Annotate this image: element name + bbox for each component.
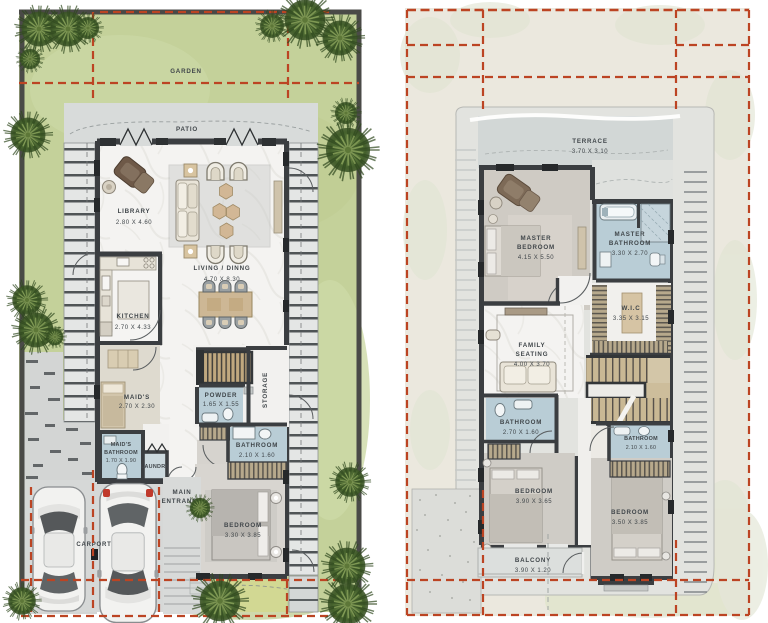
svg-text:MASTER: MASTER xyxy=(521,235,552,242)
svg-text:STORAGE: STORAGE xyxy=(262,372,269,408)
svg-text:BEDROOM: BEDROOM xyxy=(515,488,553,495)
svg-text:PATIO: PATIO xyxy=(176,126,198,133)
svg-text:2.70 X 4.33: 2.70 X 4.33 xyxy=(115,325,151,331)
svg-text:MAID'S: MAID'S xyxy=(124,394,150,401)
svg-text:BATHROOM: BATHROOM xyxy=(609,240,651,247)
svg-text:BEDROOM: BEDROOM xyxy=(611,509,649,516)
svg-text:BATHROOM: BATHROOM xyxy=(624,436,658,442)
svg-text:KITCHEN: KITCHEN xyxy=(116,313,149,320)
svg-text:LAUNDRY: LAUNDRY xyxy=(141,464,169,470)
svg-text:4.00 X 3.70: 4.00 X 3.70 xyxy=(514,362,550,368)
svg-text:3.90 X 1.20: 3.90 X 1.20 xyxy=(515,568,551,574)
svg-text:SEATING: SEATING xyxy=(516,351,549,358)
svg-text:BATHROOM: BATHROOM xyxy=(236,442,278,449)
svg-text:MAIN: MAIN xyxy=(172,489,191,496)
svg-text:POWDER: POWDER xyxy=(205,392,238,399)
svg-text:BATHROOM: BATHROOM xyxy=(500,419,542,426)
svg-text:3.90 X 3.65: 3.90 X 3.65 xyxy=(516,499,552,505)
svg-text:2.10 X 1.60: 2.10 X 1.60 xyxy=(239,453,275,459)
svg-text:4.15 X 5.50: 4.15 X 5.50 xyxy=(518,255,554,261)
svg-text:BALCONY: BALCONY xyxy=(515,557,551,564)
svg-text:LIVING / DINNG: LIVING / DINNG xyxy=(194,265,251,272)
svg-text:TERRACE: TERRACE xyxy=(572,138,608,145)
svg-text:GARDEN: GARDEN xyxy=(170,68,202,75)
svg-text:W.I.C: W.I.C xyxy=(621,305,640,312)
svg-text:1.70 X 1.90: 1.70 X 1.90 xyxy=(106,458,136,464)
svg-text:3.30 X 3.85: 3.30 X 3.85 xyxy=(225,533,261,539)
svg-text:FAMILY: FAMILY xyxy=(519,342,546,349)
svg-text:MASTER: MASTER xyxy=(615,231,646,238)
svg-text:2.70 X 2.30: 2.70 X 2.30 xyxy=(119,404,155,410)
svg-text:2.80 X 4.60: 2.80 X 4.60 xyxy=(116,220,152,226)
svg-text:BEDROOM: BEDROOM xyxy=(224,522,262,529)
svg-text:LIBRARY: LIBRARY xyxy=(118,208,151,215)
svg-text:3.70 X 3.10: 3.70 X 3.10 xyxy=(572,149,608,155)
svg-text:BATHROOM: BATHROOM xyxy=(104,450,138,456)
svg-text:2.70 X 1.60: 2.70 X 1.60 xyxy=(503,430,539,436)
svg-text:1.65 X 1.55: 1.65 X 1.55 xyxy=(203,402,239,408)
svg-text:MAID'S: MAID'S xyxy=(111,442,132,448)
svg-text:3.35 X 3.15: 3.35 X 3.15 xyxy=(613,316,649,322)
svg-text:BEDROOM: BEDROOM xyxy=(517,244,555,251)
svg-text:3.30 X 2.70: 3.30 X 2.70 xyxy=(612,251,648,257)
svg-text:2.10 X 1.60: 2.10 X 1.60 xyxy=(626,445,656,451)
svg-text:3.50 X 3.85: 3.50 X 3.85 xyxy=(612,520,648,526)
